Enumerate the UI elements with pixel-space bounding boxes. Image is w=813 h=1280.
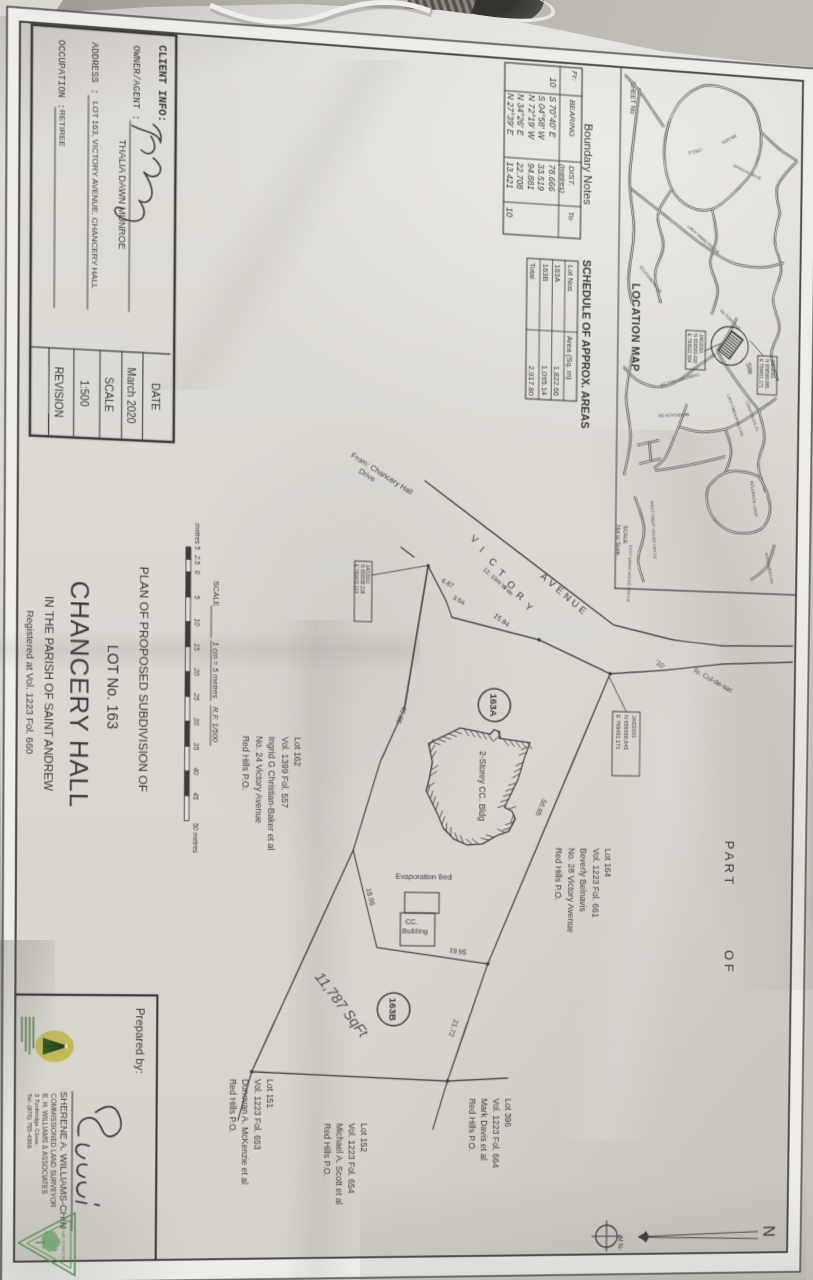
svg-text:Boundary Notes: Boundary Notes [581, 123, 594, 206]
svg-text:N 656568.845: N 656568.845 [622, 715, 628, 750]
svg-text:Fr:: Fr: [570, 71, 579, 82]
svg-text:S 04°58′ W: S 04°58′ W [537, 95, 547, 140]
svg-text:0: 0 [193, 570, 200, 574]
svg-text:N: N [760, 1225, 777, 1237]
svg-text:Red Hills P.O.: Red Hills P.O. [227, 1079, 238, 1133]
svg-text:March 2020: March 2020 [124, 367, 136, 424]
svg-text:56.95: 56.95 [534, 798, 548, 818]
svg-text:I: I [477, 545, 486, 555]
svg-text:3 Tunbridge Close,: 3 Tunbridge Close, [32, 1094, 40, 1147]
svg-text:Vol. 1223 Fol. 661: Vol. 1223 Fol. 661 [590, 848, 600, 918]
svg-text:COMMISSIONED LAND SURVEYOR: COMMISSIONED LAND SURVEYOR [48, 1094, 56, 1208]
svg-text:50 metres: 50 metres [191, 823, 198, 854]
svg-text:EAST GREAT HOUSE CIRCLE: EAST GREAT HOUSE CIRCLE [626, 545, 633, 602]
svg-text:JAD2001: JAD2001 [365, 564, 370, 584]
svg-text:3.64: 3.64 [451, 594, 466, 607]
svg-text:WILSON: WILSON [721, 133, 737, 145]
svg-text:Vol. 1223 Fol. 653: Vol. 1223 Fol. 653 [252, 1079, 263, 1150]
svg-text:CC.: CC. [405, 918, 417, 926]
svg-text:Site: Site [744, 362, 754, 376]
svg-text:2-Storey CC. Bldg: 2-Storey CC. Bldg [477, 751, 488, 821]
svg-text:Beverly Belnavis: Beverly Belnavis [578, 848, 588, 912]
svg-text:1,822.66: 1,822.66 [552, 366, 561, 396]
svg-text:Vol. 1223 Fol. 664: Vol. 1223 Fol. 664 [491, 1098, 501, 1168]
svg-text:94.881: 94.881 [526, 163, 536, 191]
svg-text:THE LAND SURVEYORS: THE LAND SURVEYORS [61, 1223, 65, 1262]
svg-text:Building: Building [402, 927, 427, 935]
svg-text:45: 45 [191, 792, 198, 800]
svg-text:ELLESMERE DR.: ELLESMERE DR. [639, 265, 664, 296]
svg-text:JAD2001: JAD2001 [630, 715, 636, 738]
svg-text:Lot 162: Lot 162 [292, 737, 302, 767]
svg-text:1,095.14: 1,095.14 [540, 365, 549, 396]
svg-text:Red Hills P.O.: Red Hills P.O. [553, 848, 563, 901]
svg-text:S 70°40′ E: S 70°40′ E [547, 96, 557, 138]
svg-text:Michael A. Scott et al: Michael A. Scott et al [334, 1123, 345, 1204]
svg-text:15: 15 [192, 643, 199, 651]
svg-text:DIST.: DIST. [567, 166, 576, 187]
svg-text:21.72: 21.72 [447, 1018, 460, 1037]
svg-text:P A R T: P A R T [722, 840, 737, 884]
svg-text:CIRCLE: CIRCLE [687, 147, 703, 156]
svg-text:To: To [567, 211, 576, 221]
svg-text:Vol. 1399 Fol. 557: Vol. 1399 Fol. 557 [279, 737, 290, 809]
svg-text:10: 10 [548, 77, 558, 88]
svg-text:Red Hills P.O.: Red Hills P.O. [240, 736, 251, 791]
svg-text:Mark Davis et al: Mark Davis et al [479, 1098, 489, 1160]
svg-text:163B: 163B [541, 263, 550, 282]
svg-text:1:500: 1:500 [77, 380, 89, 408]
svg-text:Area (Sq. m): Area (Sq. m) [565, 336, 574, 381]
svg-text:E: E [576, 604, 588, 617]
svg-text:E 766622.504: E 766622.504 [687, 333, 692, 363]
svg-text:SCALE: SCALE [211, 581, 220, 607]
svg-text:Evaporation Bed: Evaporation Bed [396, 872, 452, 882]
svg-text:2.5: 2.5 [193, 554, 200, 565]
svg-text:Lot 396: Lot 396 [503, 1098, 513, 1127]
svg-text:LADY FRESHFIELD DR.: LADY FRESHFIELD DR. [726, 393, 745, 437]
svg-text:11,787 SqFt: 11,787 SqFt [311, 969, 371, 1041]
svg-text:DATE: DATE [149, 383, 161, 411]
svg-text:5: 5 [193, 595, 200, 599]
svg-text:40: 40 [191, 767, 198, 775]
svg-text:CONSTRUCK CL.: CONSTRUCK CL. [745, 400, 761, 433]
svg-text:RETIREE: RETIREE [57, 109, 67, 147]
svg-text:33.519: 33.519 [536, 163, 546, 191]
svg-text:1 cm = 5 metres: 1 cm = 5 metres [211, 642, 221, 699]
svg-text:N 72°19′ W: N 72°19′ W [526, 94, 536, 140]
svg-text:No. 28 Victory Avenue: No. 28 Victory Avenue [565, 848, 576, 933]
svg-text:PLAN OF PROPOSED SUBDIVISION O: PLAN OF PROPOSED SUBDIVISION OF [136, 566, 151, 792]
svg-text:SCALE: SCALE [621, 525, 627, 544]
svg-text:R.F. 1/500: R.F. 1/500 [210, 707, 219, 744]
svg-text:Prepared by:: Prepared by: [133, 1008, 146, 1074]
svg-text:MONTCALM DR.: MONTCALM DR. [657, 412, 689, 418]
svg-text:OCCUPATION :: OCCUPATION : [55, 39, 67, 109]
svg-text:Red Hills P.O.: Red Hills P.O. [322, 1123, 332, 1177]
svg-text:IN THE PARISH OF SAINT ANDREW: IN THE PARISH OF SAINT ANDREW [41, 596, 55, 792]
svg-text:6.87: 6.87 [440, 577, 455, 590]
svg-text:LOT 163, VICTORY AVENUE, CHANC: LOT 163, VICTORY AVENUE, CHANCERY HALL [90, 101, 100, 290]
svg-text:163A: 163A [487, 693, 498, 717]
svg-text:Red Hills P.O.: Red Hills P.O. [467, 1098, 477, 1151]
svg-text:‘10’: ‘10’ [653, 658, 666, 671]
svg-text:Lot 151: Lot 151 [265, 1079, 275, 1108]
svg-text:SCHEDULE OF APPROX. AREAS: SCHEDULE OF APPROX. AREAS [578, 259, 592, 428]
svg-text:163B: 163B [386, 998, 397, 1021]
svg-text:N 656568.845: N 656568.845 [764, 359, 769, 389]
svg-text:35: 35 [192, 743, 199, 751]
svg-text:45.86: 45.86 [394, 705, 408, 725]
svg-text:E 769451.171: E 769451.171 [758, 359, 763, 389]
svg-text:13.421: 13.421 [504, 161, 514, 189]
svg-text:Not to Scale: Not to Scale [614, 525, 620, 556]
svg-text:JAD2001: JAD2001 [770, 359, 775, 379]
svg-text:Vol. 1223 Fol. 654: Vol. 1223 Fol. 654 [346, 1123, 357, 1193]
svg-text:Lot Nos: Lot Nos [566, 265, 575, 292]
svg-text:BELGRADE LOOP: BELGRADE LOOP [749, 481, 758, 518]
svg-text:N 27°39′ E: N 27°39′ E [505, 93, 515, 136]
svg-text:REVISION: REVISION [52, 366, 64, 417]
svg-text:(metres): (metres) [558, 164, 567, 194]
svg-text:Lot 164: Lot 164 [603, 848, 613, 877]
svg-text:OWNER/AGENT :: OWNER/AGENT : [130, 45, 142, 121]
svg-text:SCALE: SCALE [102, 377, 114, 413]
svg-text:20: 20 [192, 667, 199, 676]
svg-text:No. 24 Victory Avenue: No. 24 Victory Avenue [253, 736, 264, 824]
svg-text:19.95: 19.95 [448, 946, 467, 957]
svg-text:Lot 152: Lot 152 [359, 1123, 369, 1152]
svg-text:CHANCERY HALL: CHANCERY HALL [63, 580, 93, 808]
svg-text:JAD2001: JAD2001 [698, 334, 703, 354]
svg-text:Ingrid G Christian-Baker et al: Ingrid G Christian-Baker et al [266, 736, 277, 850]
svg-text:N 656509.418: N 656509.418 [692, 334, 697, 364]
svg-text:2,917.80: 2,917.80 [526, 365, 535, 396]
svg-text:10: 10 [192, 618, 199, 626]
svg-text:Total: Total [528, 262, 537, 279]
svg-text:To: Cul-de-sac: To: Cul-de-sac [692, 666, 735, 695]
svg-text:WEST GREAT HOUSE CIRCLE: WEST GREAT HOUSE CIRCLE [650, 501, 658, 559]
svg-text:N 656538.228: N 656538.228 [359, 564, 364, 594]
svg-text:LOT No. 163: LOT No. 163 [103, 645, 120, 730]
svg-text:E 769451.171: E 769451.171 [614, 715, 620, 750]
svg-text:metres 5: metres 5 [193, 523, 200, 550]
svg-text:Y: Y [523, 601, 535, 614]
svg-text:N 34°26′ E: N 34°26′ E [516, 94, 526, 137]
svg-text:Tel: (876) 755-4368.: Tel: (876) 755-4368. [25, 1094, 33, 1151]
svg-text:163A: 163A [553, 264, 562, 283]
svg-text:25: 25 [192, 692, 199, 701]
svg-text:22.708: 22.708 [515, 161, 525, 190]
svg-text:ADDRESS :: ADDRESS : [89, 42, 101, 95]
svg-text:SHERENE A. WILLIAMS-CHIN: SHERENE A. WILLIAMS-CHIN [57, 1091, 69, 1228]
svg-text:E. H. WILLIAMS & ASSOCIATES: E. H. WILLIAMS & ASSOCIATES [40, 1094, 48, 1195]
svg-text:V: V [468, 533, 480, 546]
svg-text:CLIENT INFO:: CLIENT INFO: [155, 45, 168, 123]
svg-text:THALIA DAWN MUNROE: THALIA DAWN MUNROE [117, 139, 128, 250]
svg-text:R: R [514, 590, 526, 603]
svg-text:BEARING: BEARING [568, 99, 577, 137]
svg-text:E 769432.103: E 769432.103 [353, 564, 358, 594]
svg-text:O F: O F [722, 950, 736, 972]
svg-text:CHANCERY HALL DR.: CHANCERY HALL DR. [658, 372, 700, 388]
svg-text:10: 10 [504, 207, 514, 218]
svg-text:Registered at Vol. 1223 Fol. 6: Registered at Vol. 1223 Fol. 660 [23, 610, 35, 755]
svg-text:78.666: 78.666 [547, 164, 557, 192]
svg-text:30: 30 [192, 718, 199, 726]
svg-text:15.84: 15.84 [492, 612, 511, 629]
svg-text:Donovan A. McKenzie et al: Donovan A. McKenzie et al [240, 1079, 251, 1185]
